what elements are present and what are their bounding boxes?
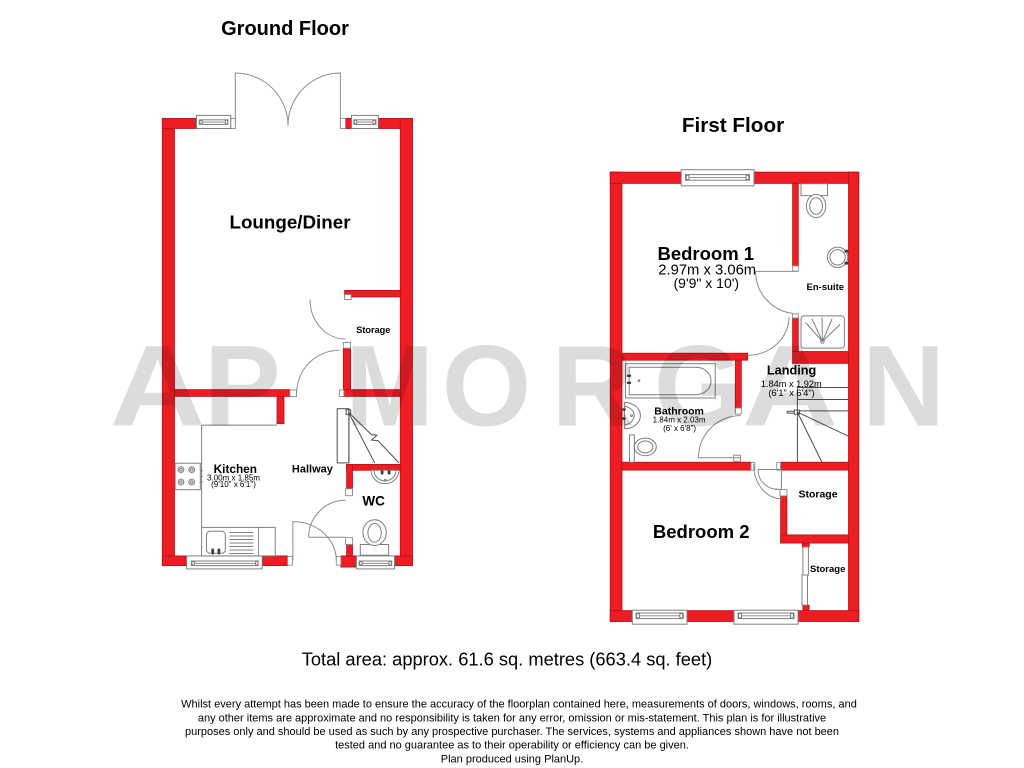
svg-text:Ground Floor: Ground Floor (221, 18, 349, 40)
svg-text:First Floor: First Floor (682, 114, 784, 137)
svg-text:A: A (742, 322, 838, 450)
svg-text:Bedroom 2: Bedroom 2 (653, 521, 750, 542)
svg-text:Storage: Storage (798, 489, 837, 501)
svg-text:Bedroom 1: Bedroom 1 (657, 243, 754, 264)
svg-text:G: G (654, 322, 743, 450)
svg-text:En-suite: En-suite (807, 282, 844, 293)
svg-text:Hallway: Hallway (292, 464, 334, 476)
svg-text:P: P (204, 322, 281, 450)
svg-text:(9'9" x 10'): (9'9" x 10') (674, 275, 740, 291)
svg-text:R: R (552, 322, 635, 450)
svg-text:Storage: Storage (810, 564, 845, 575)
svg-text:O: O (442, 322, 531, 450)
svg-text:A: A (110, 322, 206, 450)
svg-text:WC: WC (362, 493, 385, 508)
svg-text:any other items are approximat: any other items are approximate and no r… (198, 712, 826, 724)
svg-text:Total area: approx. 61.6 sq. m: Total area: approx. 61.6 sq. metres (663… (302, 649, 713, 670)
svg-text:Plan produced using PlanUp.: Plan produced using PlanUp. (441, 753, 583, 765)
svg-text:tested and no guarantee as to: tested and no guarantee as to their oper… (335, 740, 689, 752)
svg-text:Whilst every attempt has been: Whilst every attempt has been made to en… (181, 699, 857, 711)
svg-text:purposes only and should be us: purposes only and should be used as such… (185, 726, 839, 738)
svg-text:(9'10" x 6'1"): (9'10" x 6'1") (211, 480, 256, 489)
svg-text:N: N (862, 322, 945, 450)
svg-text:M: M (346, 322, 434, 450)
svg-text:Lounge/Diner: Lounge/Diner (229, 212, 351, 233)
